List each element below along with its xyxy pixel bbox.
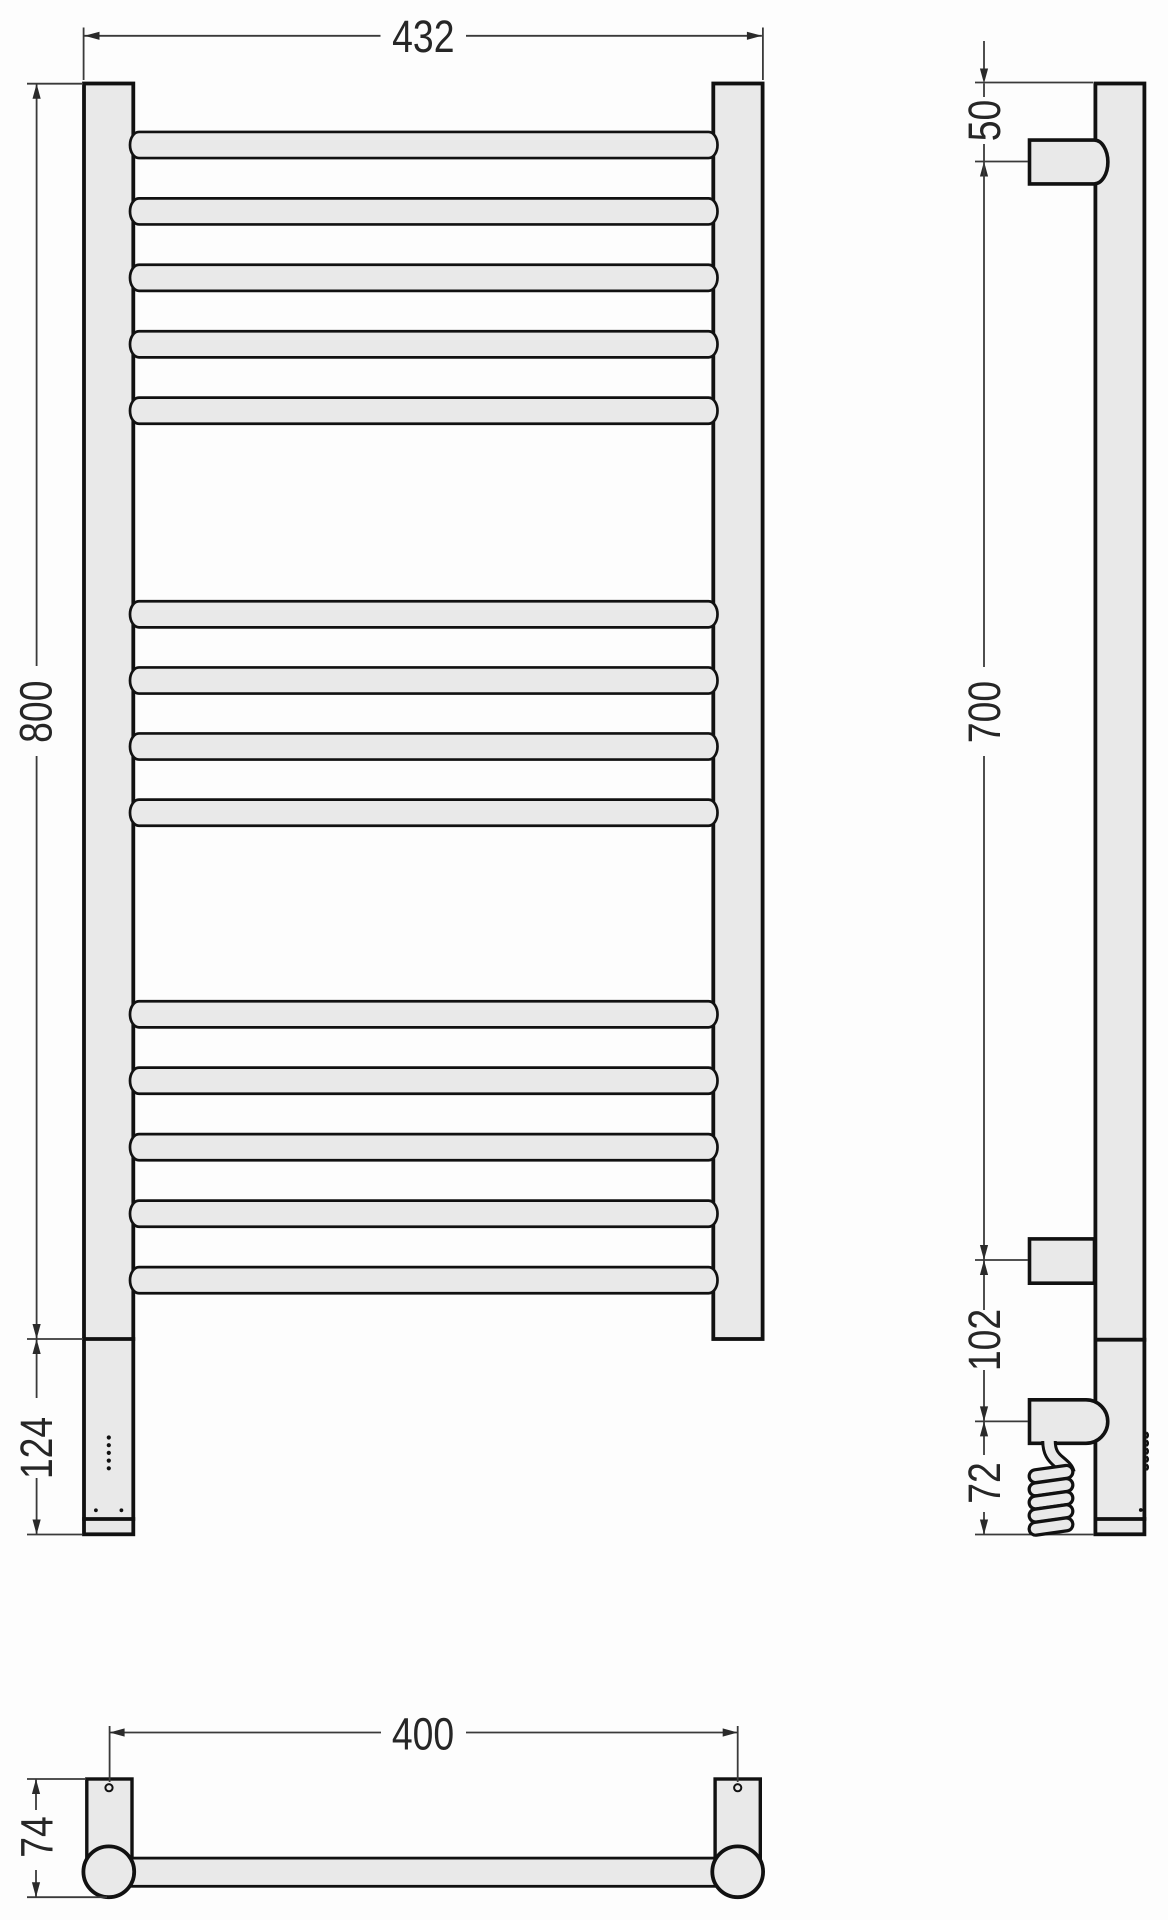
svg-text:72: 72 [960,1462,1010,1504]
svg-text:50: 50 [960,100,1010,142]
svg-text:102: 102 [960,1309,1010,1371]
svg-text:400: 400 [392,1709,454,1759]
svg-text:124: 124 [12,1417,62,1479]
svg-text:800: 800 [11,681,61,743]
svg-text:432: 432 [392,12,454,62]
svg-text:74: 74 [12,1816,62,1858]
svg-text:700: 700 [960,681,1010,743]
